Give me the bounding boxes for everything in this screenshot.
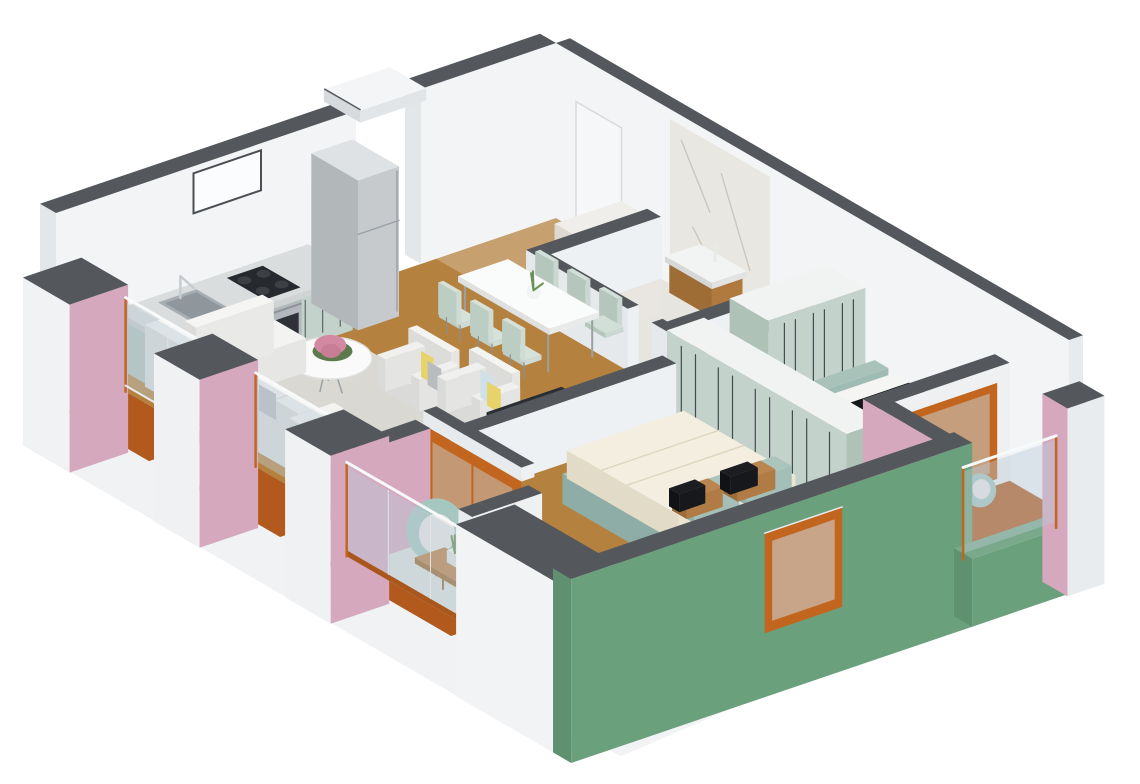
cooktop-burner-3 [238, 276, 252, 284]
flower-bloom-2 [321, 344, 341, 358]
cooktop-burner-2 [275, 280, 289, 288]
cooktop-burner-4 [256, 287, 270, 295]
apartment-3d-floorplan [0, 0, 1140, 784]
cooktop-burner-1 [257, 270, 271, 278]
pillar-mid-1 [154, 334, 258, 548]
pillar-west [23, 258, 128, 473]
apartment-render-stage [0, 0, 1140, 784]
fridge-tall-unit [311, 139, 399, 330]
